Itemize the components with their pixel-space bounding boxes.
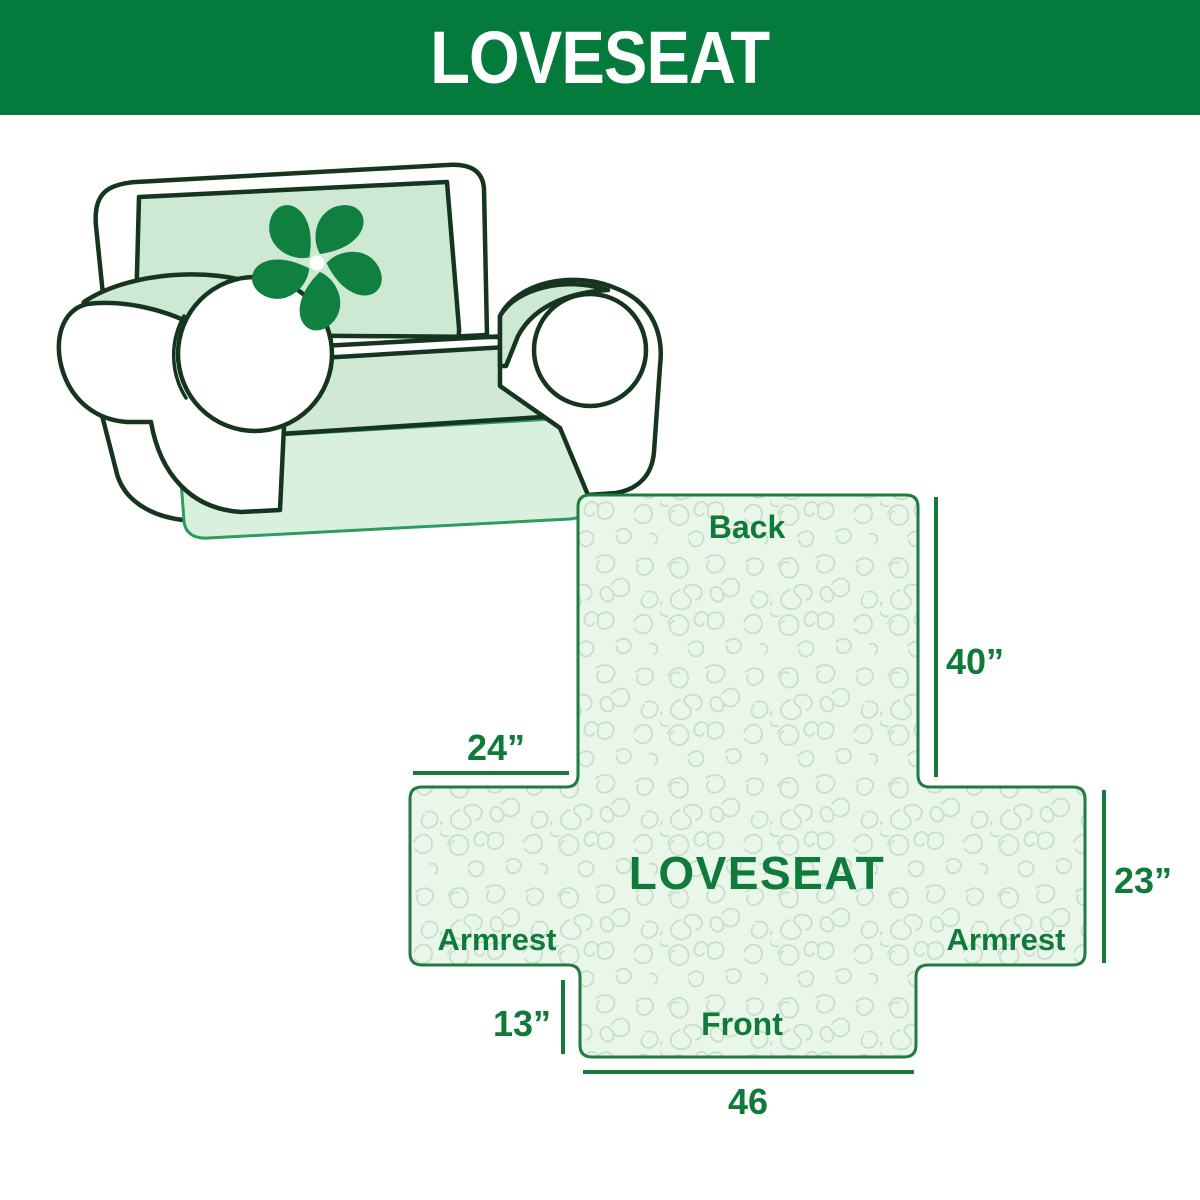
dim-front-drop-value: 13” xyxy=(493,1003,551,1044)
dim-front-width-value: 46 xyxy=(728,1081,768,1122)
dim-back-height-value: 40” xyxy=(946,641,1004,682)
page: LOVESEAT xyxy=(0,0,1200,1200)
sofa-right-arm-roll xyxy=(534,294,646,406)
scene-canvas: Back LOVESEAT Armrest Armrest Front 40” … xyxy=(0,0,1200,1200)
armrest-left-label: Armrest xyxy=(438,922,557,957)
cover-dimensions-diagram: Back LOVESEAT Armrest Armrest Front 40” … xyxy=(410,495,1172,1122)
dim-seat-side-value: 23” xyxy=(1114,860,1172,901)
front-section-label: Front xyxy=(701,1006,783,1042)
armrest-right-label: Armrest xyxy=(947,922,1066,957)
loveseat-illustration xyxy=(59,165,661,538)
back-section-label: Back xyxy=(709,509,786,545)
center-loveseat-label: LOVESEAT xyxy=(629,847,886,899)
dim-armrest-top-value: 24” xyxy=(467,727,525,768)
cover-outline-shape xyxy=(410,495,1085,1057)
